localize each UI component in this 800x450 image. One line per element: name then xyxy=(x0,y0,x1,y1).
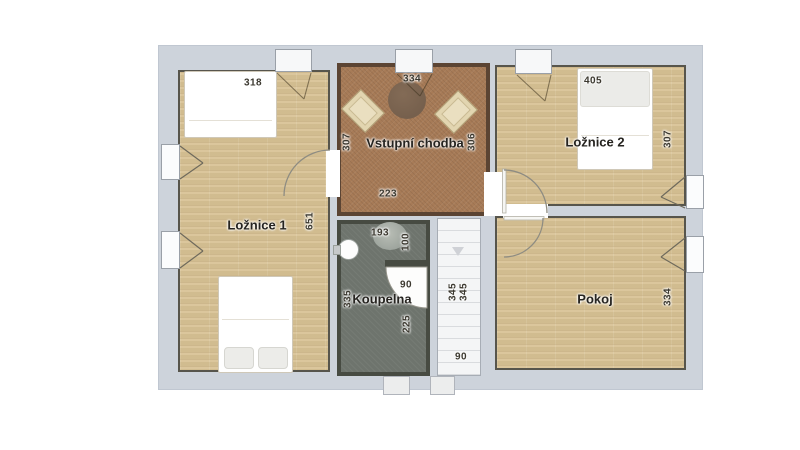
roof-window xyxy=(515,49,552,74)
dim-loznice2-right: 307 xyxy=(663,130,674,148)
dim-chodba-bottom: 223 xyxy=(379,189,397,200)
dim-koupelna-lower-right: 225 xyxy=(402,315,413,333)
bed xyxy=(218,276,293,373)
window xyxy=(686,175,704,209)
dim-pokoj-right: 334 xyxy=(663,288,674,306)
floor-plan: Ložnice 1 Vstupní chodba Ložnice 2 Koupe… xyxy=(0,0,800,450)
dim-loznice1-top: 318 xyxy=(244,78,262,89)
dim-koupelna-top: 193 xyxy=(371,228,389,239)
room-label-chodba: Vstupní chodba xyxy=(366,136,464,151)
tap xyxy=(333,245,341,255)
window xyxy=(161,144,180,180)
window xyxy=(161,231,180,269)
dim-chodba-top: 334 xyxy=(403,74,421,85)
dim-loznice1-height: 651 xyxy=(305,212,316,230)
blanket-fold xyxy=(189,120,273,121)
washbasin xyxy=(338,239,359,260)
landing-passage xyxy=(484,172,504,216)
door-opening-loznice1 xyxy=(326,150,340,197)
roof-window xyxy=(275,49,312,72)
shaft-box xyxy=(430,376,455,395)
room-label-koupelna: Koupelna xyxy=(352,292,411,307)
chair-cushion xyxy=(348,96,378,126)
room-label-loznice2: Ložnice 2 xyxy=(565,135,624,150)
dim-stairs-width: 90 xyxy=(455,352,467,363)
pillow xyxy=(224,347,254,369)
dim-loznice2-top: 405 xyxy=(584,76,602,87)
blanket-fold xyxy=(222,319,289,320)
bed xyxy=(184,71,277,138)
bathroom-stub-wall xyxy=(385,260,430,267)
door-opening-loznice2-pokoj xyxy=(503,204,548,218)
window xyxy=(686,236,704,273)
stairs-direction-arrow xyxy=(452,247,464,256)
shaft-box xyxy=(383,376,410,395)
roof-window xyxy=(395,49,433,73)
dim-koupelna-door: 90 xyxy=(400,280,412,291)
dim-chodba-right: 306 xyxy=(467,133,478,151)
round-table xyxy=(388,81,426,119)
dim-stairs-run1: 345 xyxy=(448,283,459,301)
dim-koupelna-left: 335 xyxy=(343,290,354,308)
room-label-pokoj: Pokoj xyxy=(577,292,612,307)
pillow xyxy=(258,347,288,369)
room-label-loznice1: Ložnice 1 xyxy=(227,218,286,233)
dim-koupelna-upper-right: 100 xyxy=(401,233,412,251)
dim-stairs-run2: 345 xyxy=(459,283,470,301)
dim-chodba-left: 307 xyxy=(342,133,353,151)
